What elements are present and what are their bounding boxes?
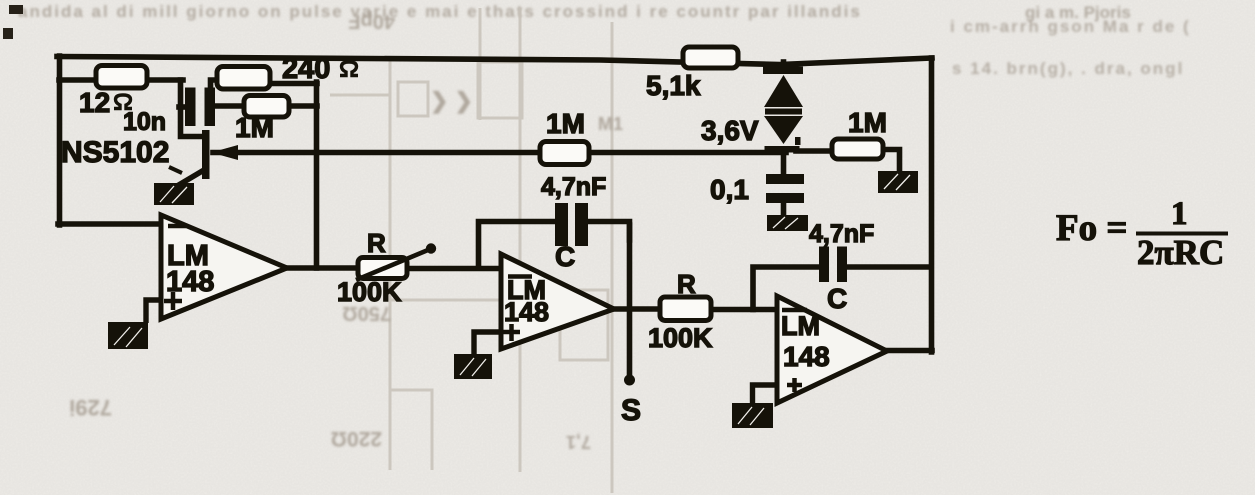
svg-text:Fo =: Fo =: [1056, 208, 1127, 249]
svg-text:andida al di mill giorno: andida al di mill giorno on pulse varie …: [18, 2, 862, 21]
svg-text:M1: M1: [598, 114, 623, 134]
svg-text:5,1k: 5,1k: [646, 70, 701, 101]
svg-text:148: 148: [504, 297, 549, 327]
svg-text:S: S: [621, 394, 641, 427]
svg-text:1: 1: [1171, 196, 1188, 232]
svg-text:7,1: 7,1: [566, 432, 591, 452]
svg-text:C: C: [827, 283, 847, 314]
svg-text:s 14. brn(g), . dra, ongl: s 14. brn(g), . dra, ongl: [952, 59, 1184, 78]
svg-text:1M: 1M: [235, 112, 274, 143]
svg-text:240: 240: [282, 53, 330, 85]
svg-text:12: 12: [79, 87, 110, 118]
svg-text:4,7nF: 4,7nF: [541, 173, 606, 201]
svg-text:❯ ❯: ❯ ❯: [430, 88, 473, 114]
svg-text:LM: LM: [781, 311, 820, 341]
svg-text:NS5102: NS5102: [61, 136, 169, 169]
svg-text:40pF: 40pF: [348, 10, 395, 32]
svg-text:0,1: 0,1: [710, 174, 749, 205]
svg-text:100K: 100K: [337, 277, 402, 307]
svg-text:2πRC: 2πRC: [1137, 233, 1224, 272]
svg-text:729i: 729i: [69, 395, 112, 420]
svg-text:220Ω: 220Ω: [331, 427, 382, 450]
svg-text:148: 148: [783, 341, 830, 372]
svg-text:i cm-arrh gson Ma r de (: i cm-arrh gson Ma r de (: [950, 17, 1191, 36]
svg-text:3,6V: 3,6V: [701, 115, 759, 146]
svg-text:100K: 100K: [648, 323, 713, 353]
svg-text:R: R: [677, 269, 696, 299]
svg-text:C: C: [555, 241, 575, 272]
svg-text:1M: 1M: [848, 107, 887, 138]
svg-text:R: R: [367, 228, 386, 258]
svg-text:4,7nF: 4,7nF: [809, 220, 874, 248]
svg-text:10n: 10n: [123, 108, 166, 136]
svg-text:1M: 1M: [546, 108, 585, 139]
